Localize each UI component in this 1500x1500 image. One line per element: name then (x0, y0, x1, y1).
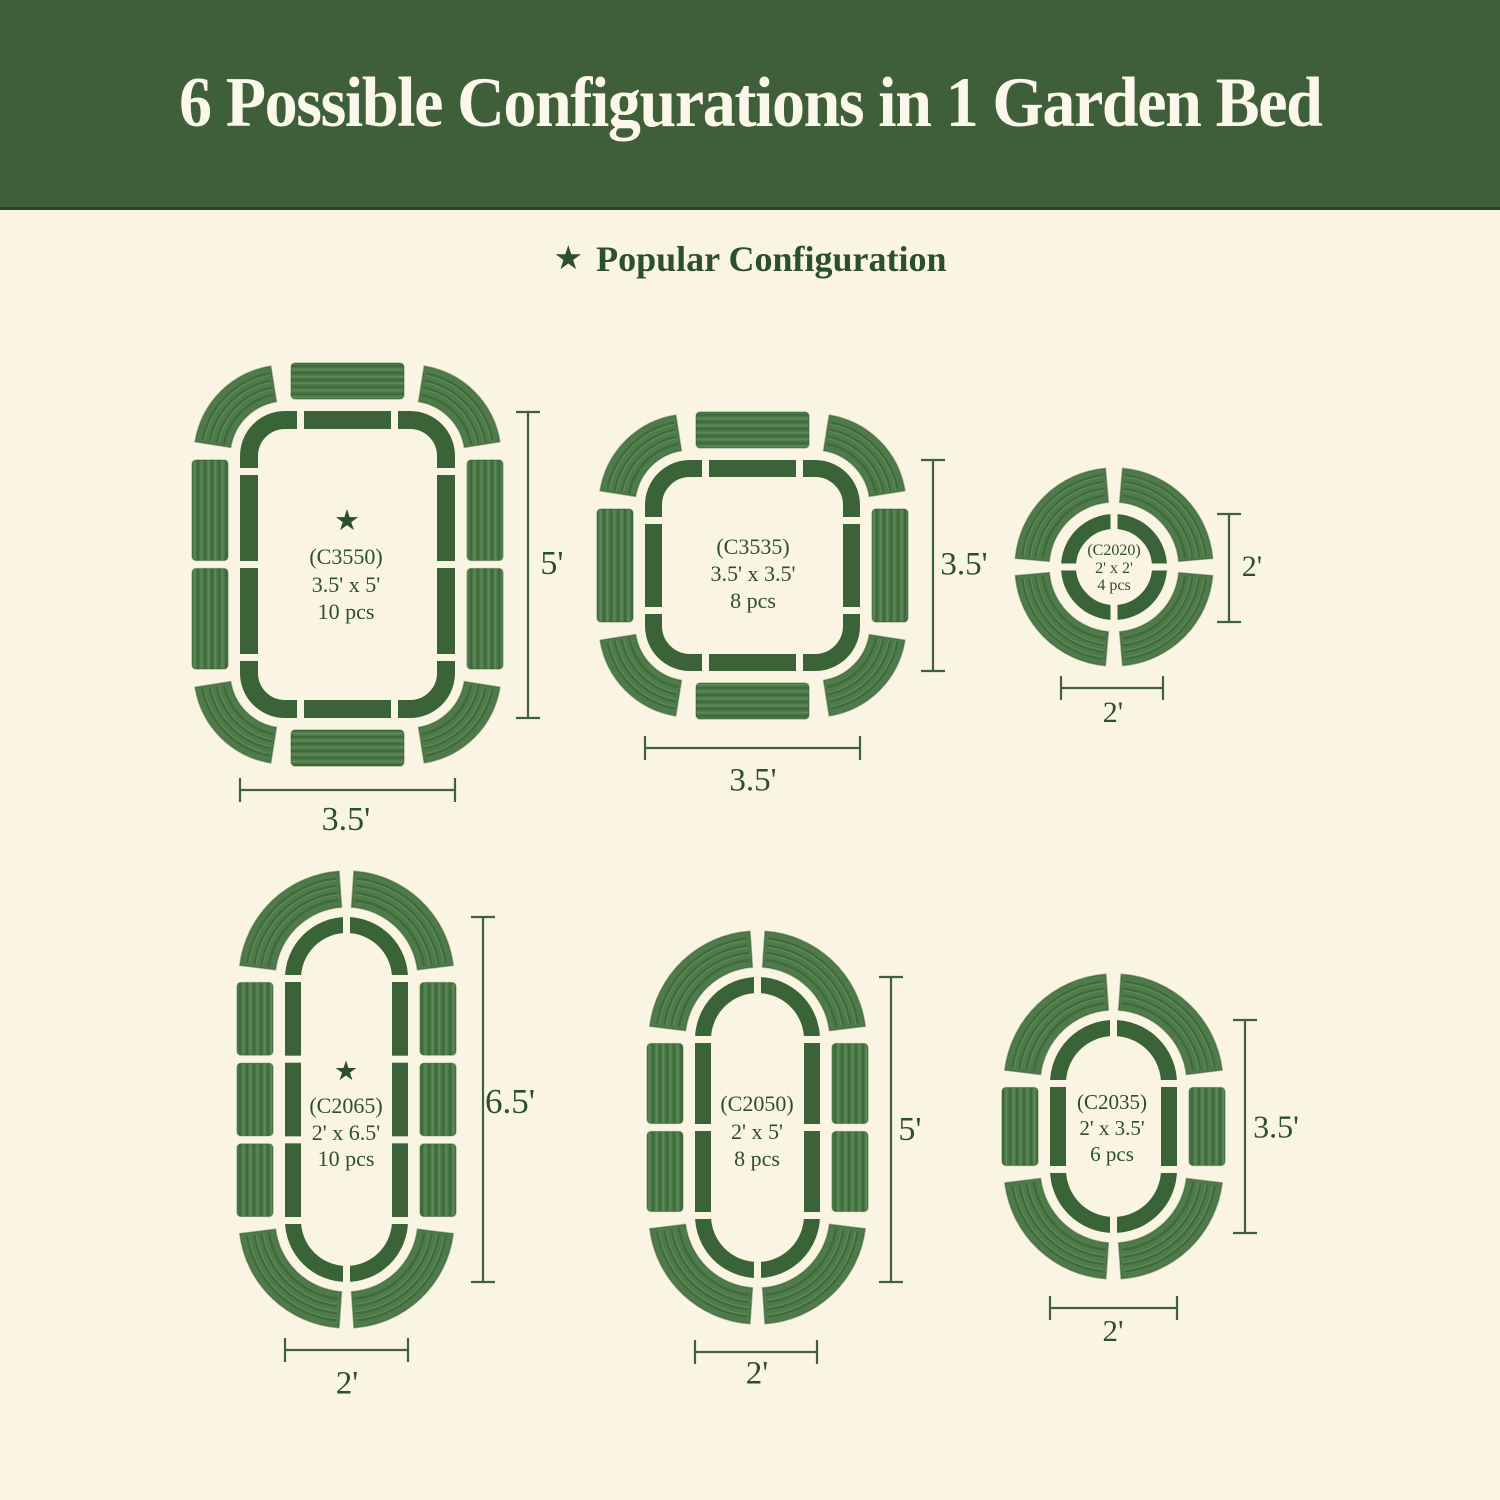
infographic-page: 6 Possible Configurations in 1 Garden Be… (0, 0, 1500, 1500)
height-dimension-label: 5' (898, 1111, 921, 1149)
config-pieces: 6 pcs (1077, 1141, 1147, 1167)
config-size: 3.5' x 5' (309, 571, 382, 599)
width-dimension-label: 2' (1103, 696, 1123, 730)
config-size: 2' x 3.5' (1077, 1115, 1147, 1141)
config-code: (C3550) (309, 543, 382, 571)
config-text: (C3550) 3.5' x 5' 10 pcs (309, 543, 382, 626)
config-code: (C2035) (1077, 1089, 1147, 1115)
height-dimension-label: 3.5' (1253, 1109, 1299, 1146)
config-pieces: 10 pcs (309, 598, 382, 626)
config-size: 2' x 5' (720, 1118, 793, 1146)
width-dimension-label: 3.5' (322, 801, 371, 839)
popular-star-icon: ★ (334, 1058, 358, 1085)
config-text: (C2020) 2' x 2' 4 pcs (1087, 542, 1140, 595)
config-pieces: 4 pcs (1087, 577, 1140, 595)
config-code: (C2020) (1087, 542, 1140, 560)
width-dimension-label: 2' (336, 1366, 358, 1403)
height-dimension-label: 3.5' (940, 547, 987, 584)
popular-star-icon: ★ (334, 507, 360, 536)
width-dimension-label: 2' (746, 1356, 768, 1393)
config-code: (C2050) (720, 1090, 793, 1118)
config-size: 2' x 2' (1087, 560, 1140, 578)
config-code: (C2065) (309, 1093, 382, 1120)
config-text: (C2065) 2' x 6.5' 10 pcs (309, 1093, 382, 1173)
config-size: 2' x 6.5' (309, 1120, 382, 1147)
config-pieces: 8 pcs (711, 587, 796, 614)
config-pieces: 8 pcs (720, 1145, 793, 1173)
height-dimension-label: 2' (1242, 550, 1262, 584)
height-dimension-label: 6.5' (485, 1082, 535, 1122)
width-dimension-label: 2' (1102, 1313, 1123, 1349)
height-dimension-label: 5' (540, 545, 563, 583)
config-size: 3.5' x 3.5' (711, 560, 796, 587)
config-pieces: 10 pcs (309, 1146, 382, 1173)
config-text: (C3535) 3.5' x 3.5' 8 pcs (711, 533, 796, 614)
config-text: (C2035) 2' x 3.5' 6 pcs (1077, 1089, 1147, 1167)
garden-bed-diagram-canvas (0, 0, 1500, 1500)
config-code: (C3535) (711, 533, 796, 560)
config-text: (C2050) 2' x 5' 8 pcs (720, 1090, 793, 1173)
width-dimension-label: 3.5' (729, 763, 776, 800)
